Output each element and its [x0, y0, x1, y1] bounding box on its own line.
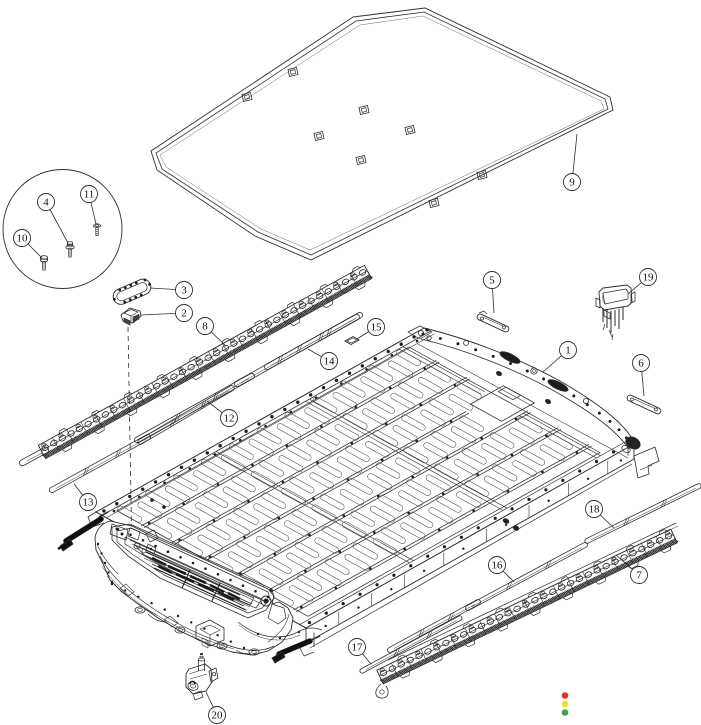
svg-text:4: 4: [43, 197, 49, 209]
svg-text:13: 13: [83, 497, 95, 509]
svg-text:19: 19: [643, 272, 655, 284]
svg-text:10: 10: [17, 233, 29, 245]
svg-text:20: 20: [212, 710, 224, 722]
svg-text:2: 2: [181, 308, 187, 320]
svg-text:15: 15: [371, 322, 383, 334]
svg-text:16: 16: [492, 560, 504, 572]
svg-text:14: 14: [324, 356, 336, 368]
svg-text:12: 12: [224, 413, 235, 425]
svg-text:5: 5: [489, 275, 495, 287]
svg-text:6: 6: [638, 358, 644, 370]
svg-text:11: 11: [84, 189, 95, 201]
svg-text:9: 9: [569, 177, 575, 189]
svg-text:8: 8: [202, 321, 208, 333]
svg-text:7: 7: [636, 570, 642, 582]
svg-text:17: 17: [352, 642, 364, 654]
svg-text:18: 18: [589, 504, 601, 516]
svg-text:1: 1: [565, 345, 571, 357]
svg-text:3: 3: [181, 285, 187, 297]
